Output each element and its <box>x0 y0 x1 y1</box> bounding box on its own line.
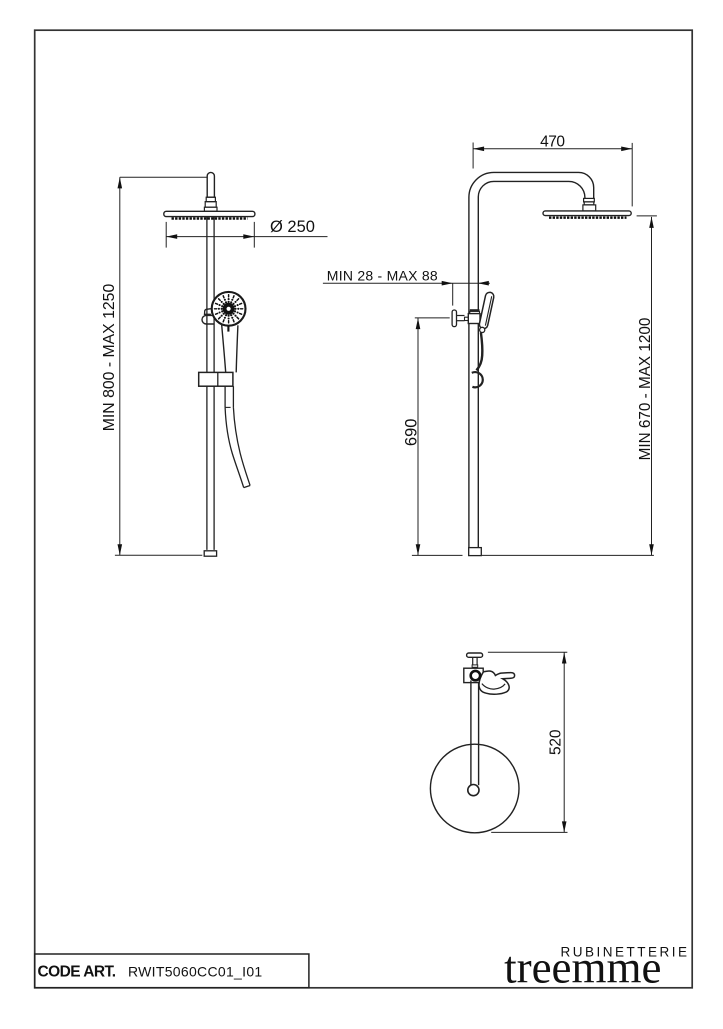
svg-text:MIN 28 - MAX 88: MIN 28 - MAX 88 <box>327 267 438 283</box>
svg-text:520: 520 <box>548 729 565 755</box>
svg-text:Ø 250: Ø 250 <box>270 218 315 236</box>
svg-text:690: 690 <box>403 419 421 447</box>
svg-text:MIN 800 - MAX 1250: MIN 800 - MAX 1250 <box>101 284 118 432</box>
svg-text:CODE ART.: CODE ART. <box>38 963 116 980</box>
svg-text:MIN 670 - MAX 1200: MIN 670 - MAX 1200 <box>637 318 654 461</box>
svg-text:treemme: treemme <box>504 943 661 993</box>
svg-text:RWIT5060CC01_I01: RWIT5060CC01_I01 <box>128 963 263 979</box>
svg-text:470: 470 <box>540 133 565 150</box>
